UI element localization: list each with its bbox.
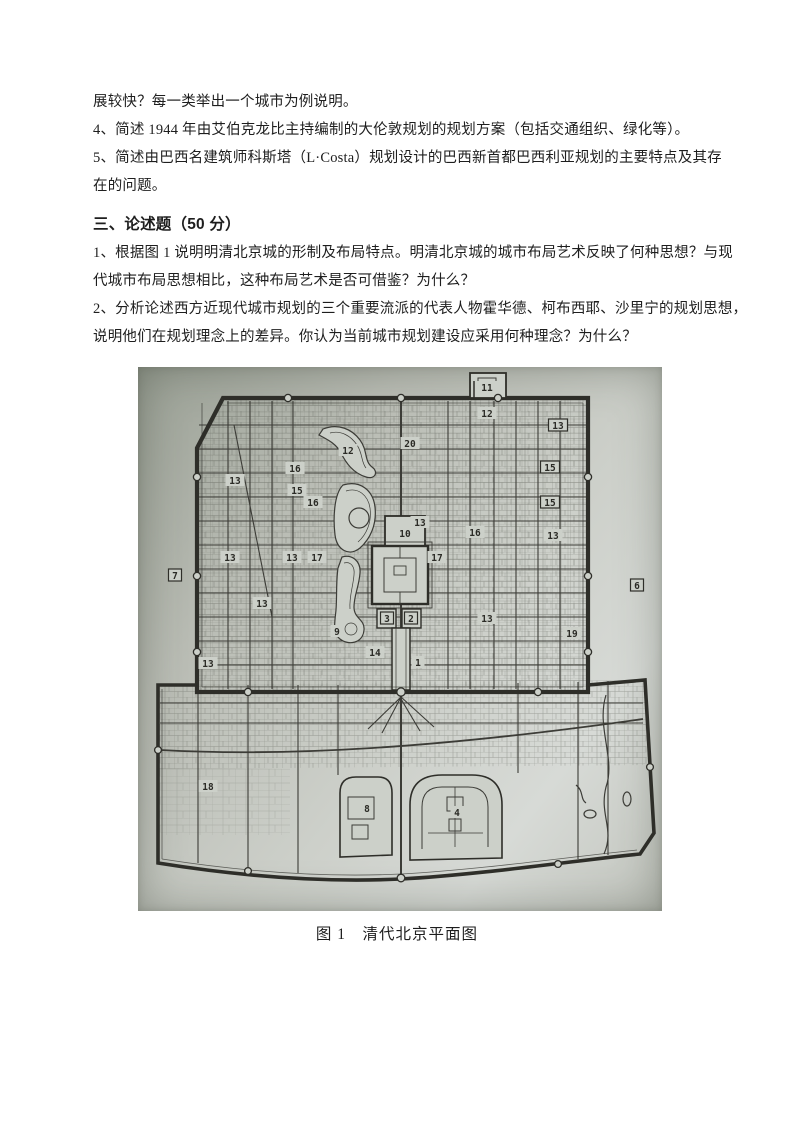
- svg-text:15: 15: [291, 486, 303, 497]
- essay-line: 2、分析论述西方近现代城市规划的三个重要流派的代表人物霍华德、柯布西耶、沙里宁的…: [93, 295, 713, 323]
- svg-text:15: 15: [544, 498, 556, 509]
- document-page: 展较快？每一类举出一个城市为例说明。 4、简述 1944 年由艾伯克龙比主持编制…: [0, 0, 794, 1123]
- svg-text:13: 13: [224, 553, 236, 564]
- svg-text:17: 17: [311, 553, 322, 564]
- intro-line: 4、简述 1944 年由艾伯克龙比主持编制的大伦敦规划的规划方案（包括交通组织、…: [93, 116, 713, 144]
- beijing-map-image: 1112132012151613151615131610131313171776…: [138, 367, 662, 911]
- svg-text:18: 18: [202, 782, 214, 793]
- svg-text:7: 7: [172, 571, 178, 582]
- svg-text:16: 16: [469, 528, 481, 539]
- intro-line: 在的问题。: [93, 172, 713, 200]
- svg-text:19: 19: [566, 629, 578, 640]
- svg-text:17: 17: [431, 553, 442, 564]
- svg-text:13: 13: [552, 421, 564, 432]
- svg-text:1: 1: [415, 658, 421, 669]
- svg-text:2: 2: [408, 614, 414, 625]
- svg-text:15: 15: [544, 463, 556, 474]
- svg-text:16: 16: [307, 498, 319, 509]
- svg-text:12: 12: [342, 446, 353, 457]
- svg-text:14: 14: [369, 648, 381, 659]
- svg-text:13: 13: [481, 614, 493, 625]
- svg-text:12: 12: [481, 409, 492, 420]
- svg-text:8: 8: [364, 804, 370, 815]
- svg-text:6: 6: [634, 581, 640, 592]
- svg-text:16: 16: [289, 464, 301, 475]
- svg-text:13: 13: [202, 659, 214, 670]
- svg-text:9: 9: [334, 627, 340, 638]
- essay-line: 代城市布局思想相比，这种布局艺术是否可借鉴？为什么？: [93, 267, 713, 295]
- document-body: 展较快？每一类举出一个城市为例说明。 4、简述 1944 年由艾伯克龙比主持编制…: [93, 88, 713, 351]
- svg-text:13: 13: [229, 476, 241, 487]
- figure-scan-photo: 1112132012151613151615131610131313171776…: [138, 367, 662, 911]
- figure-caption: 图 1 清代北京平面图: [0, 922, 794, 944]
- essay-line: 说明他们在规划理念上的差异。你认为当前城市规划建设应采用何种理念？为什么？: [93, 323, 713, 351]
- svg-text:13: 13: [414, 518, 426, 529]
- svg-text:4: 4: [454, 808, 460, 819]
- svg-text:10: 10: [399, 529, 411, 540]
- svg-text:13: 13: [547, 531, 559, 542]
- svg-text:13: 13: [286, 553, 298, 564]
- svg-text:11: 11: [481, 383, 493, 394]
- svg-text:13: 13: [256, 599, 268, 610]
- svg-text:20: 20: [404, 439, 416, 450]
- section-heading: 三、论述题（50 分）: [93, 211, 713, 239]
- svg-text:3: 3: [384, 614, 390, 625]
- intro-line: 展较快？每一类举出一个城市为例说明。: [93, 88, 713, 116]
- intro-line: 5、简述由巴西名建筑师科斯塔（L·Costa）规划设计的巴西新首都巴西利亚规划的…: [93, 144, 713, 172]
- essay-line: 1、根据图 1 说明明清北京城的形制及布局特点。明清北京城的城市布局艺术反映了何…: [93, 239, 713, 267]
